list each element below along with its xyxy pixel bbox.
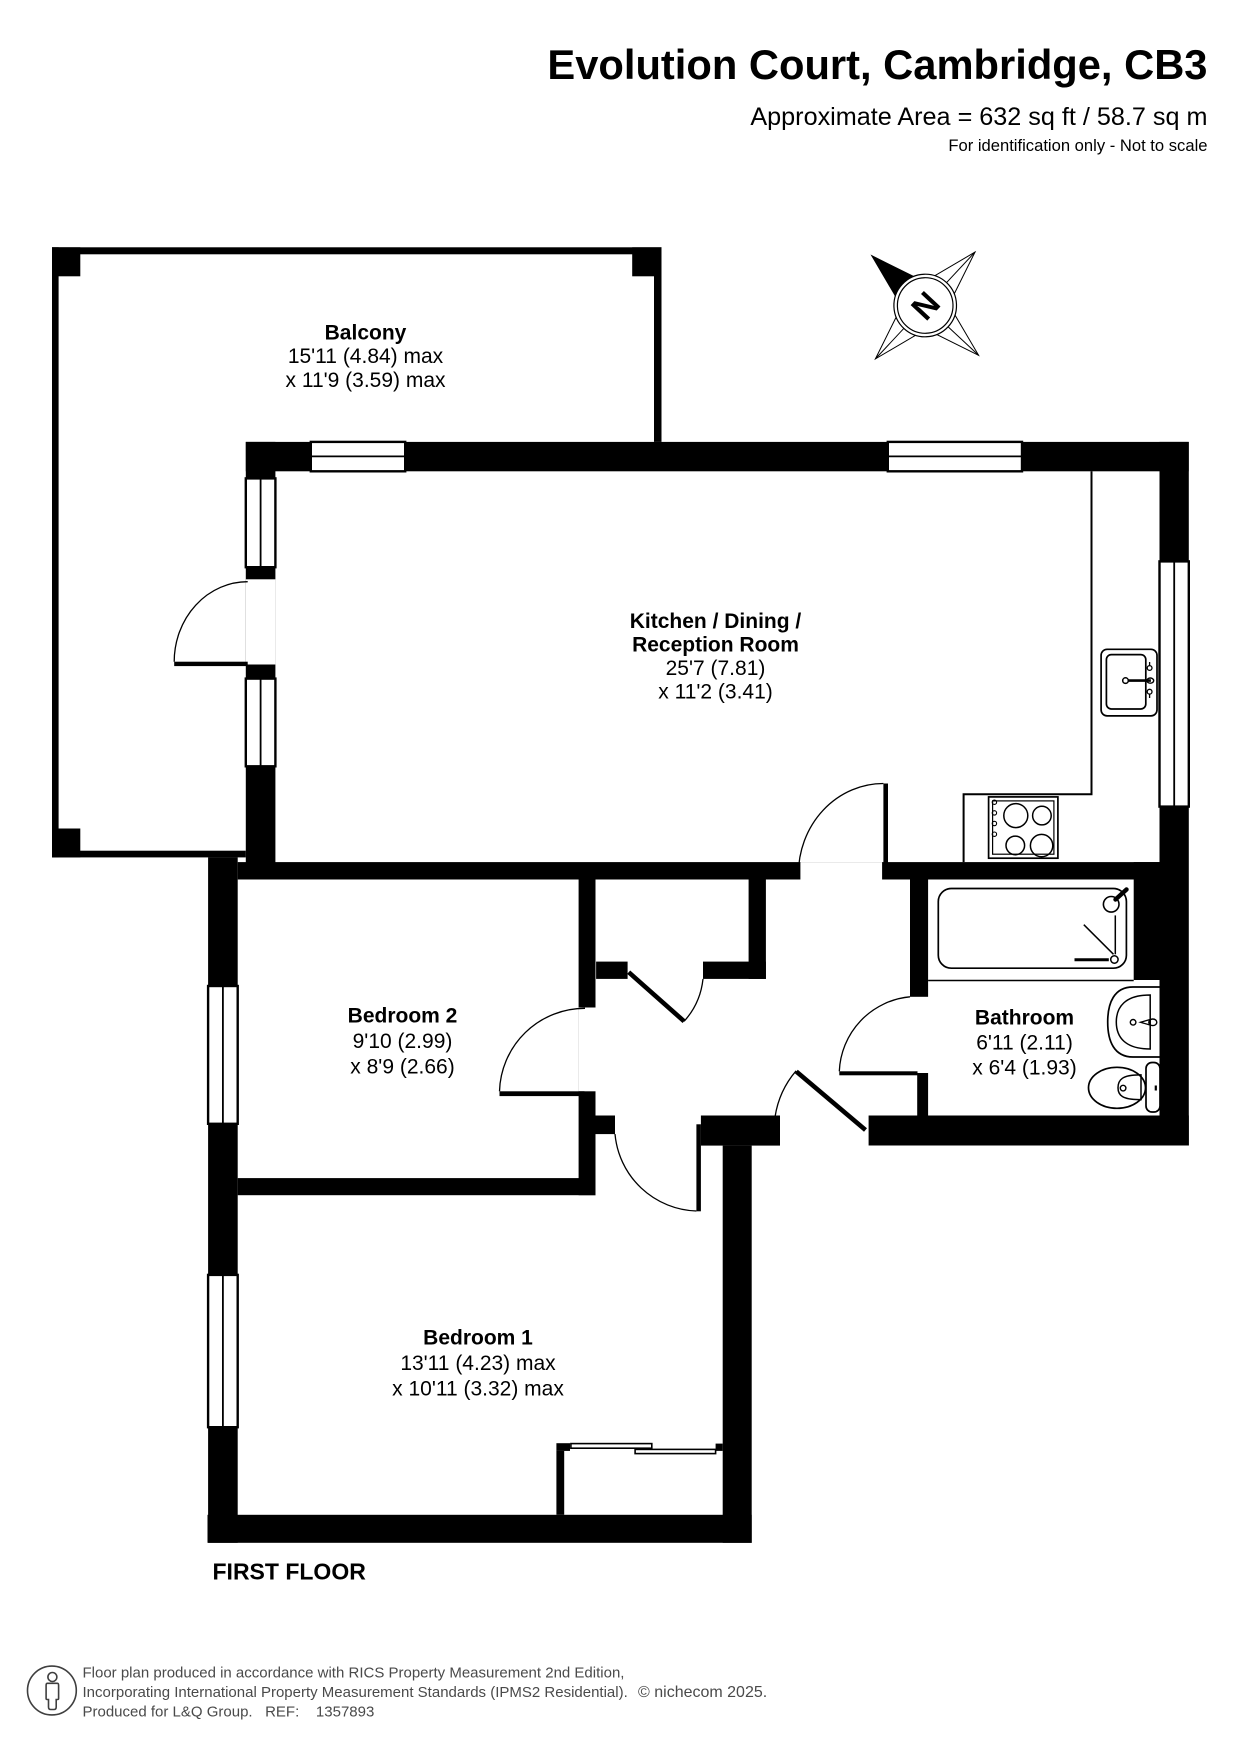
svg-text:Evolution Court, Cambridge, CB: Evolution Court, Cambridge, CB3 bbox=[547, 41, 1207, 88]
svg-text:Produced for L&Q Group. REF:: Produced for L&Q Group. REF: 1357893 bbox=[83, 1704, 375, 1721]
svg-text:Kitchen / Dining /: Kitchen / Dining / bbox=[630, 610, 802, 633]
svg-text:Balcony: Balcony bbox=[325, 322, 407, 345]
svg-text:Approximate Area = 632 sq ft /: Approximate Area = 632 sq ft / 58.7 sq m bbox=[750, 103, 1207, 131]
svg-text:13'11 (4.23) max: 13'11 (4.23) max bbox=[400, 1352, 556, 1375]
svg-text:x 11'9 (3.59) max: x 11'9 (3.59) max bbox=[285, 369, 446, 392]
svg-text:FIRST FLOOR: FIRST FLOOR bbox=[213, 1559, 367, 1585]
svg-text:6'11 (2.11): 6'11 (2.11) bbox=[976, 1032, 1073, 1055]
svg-text:© nichecom 2025.: © nichecom 2025. bbox=[638, 1684, 767, 1701]
svg-text:Bedroom 2: Bedroom 2 bbox=[348, 1005, 458, 1028]
svg-text:x 8'9 (2.66): x 8'9 (2.66) bbox=[350, 1055, 454, 1078]
svg-text:For identification only - Not: For identification only - Not to scale bbox=[948, 136, 1207, 155]
svg-text:Reception Room: Reception Room bbox=[632, 634, 799, 657]
svg-text:Floor plan produced in accorda: Floor plan produced in accordance with R… bbox=[83, 1665, 625, 1682]
svg-text:x 6'4 (1.93): x 6'4 (1.93) bbox=[972, 1057, 1076, 1080]
svg-text:Bedroom 1: Bedroom 1 bbox=[423, 1327, 533, 1350]
svg-text:Incorporating International Pr: Incorporating International Property Mea… bbox=[83, 1684, 628, 1701]
svg-text:15'11 (4.84) max: 15'11 (4.84) max bbox=[288, 345, 444, 368]
svg-text:x 10'11 (3.32) max: x 10'11 (3.32) max bbox=[392, 1377, 564, 1400]
svg-text:9'10 (2.99): 9'10 (2.99) bbox=[353, 1030, 453, 1053]
svg-text:25'7 (7.81): 25'7 (7.81) bbox=[666, 657, 766, 680]
svg-text:Bathroom: Bathroom bbox=[975, 1006, 1074, 1029]
svg-text:x 11'2 (3.41): x 11'2 (3.41) bbox=[658, 681, 773, 704]
